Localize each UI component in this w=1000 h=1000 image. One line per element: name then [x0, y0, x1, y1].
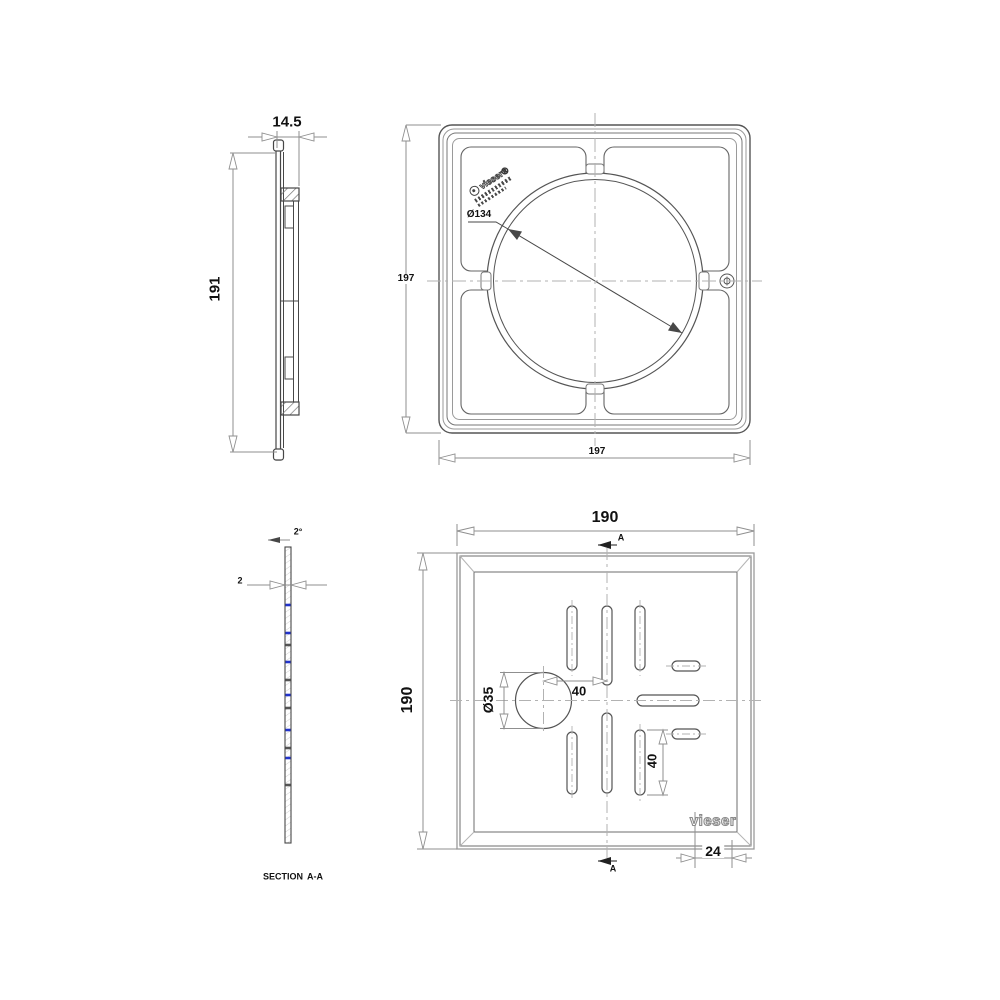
- dim-label-draft-angle: 2°: [294, 528, 303, 537]
- dim-label-frame-height: 197: [395, 274, 418, 284]
- side-plate: [276, 143, 281, 460]
- side-upper-clip: [285, 206, 294, 228]
- section-arrow-label-bottom: A: [610, 865, 617, 874]
- dim-label-side-width: 14.5: [272, 115, 301, 130]
- side-upper-flange: [281, 188, 299, 201]
- dim-label-hole-diameter: Ø35: [481, 687, 495, 713]
- side-lower-clip: [285, 357, 294, 379]
- section-draft-angle-mark: [268, 537, 290, 543]
- dim-label-frame-width: 197: [586, 447, 609, 457]
- dim-label-grate-height: 190: [400, 687, 416, 714]
- section-ticks: [286, 605, 291, 785]
- side-top-lip: [274, 140, 284, 151]
- drawing-linework: [0, 0, 1000, 1000]
- technical-drawing-canvas: 14.5 191 197 197 Ø134 vieser® 2° 2 SECTI…: [0, 0, 1000, 1000]
- section-caption: SECTION: [263, 873, 303, 882]
- dim-label-cover-diameter: Ø134: [467, 210, 491, 220]
- section-view-group: [247, 537, 327, 843]
- side-lower-flange: [281, 402, 299, 415]
- dim-label-thickness: 2: [237, 577, 242, 586]
- section-arrow-label-top: A: [618, 534, 625, 543]
- side-view-group: [274, 140, 300, 460]
- vieser-logo: vieser: [690, 814, 736, 829]
- section-caption-name: A-A: [307, 873, 323, 882]
- dim-label-slot-length: 40: [646, 754, 659, 768]
- dim-label-corner-offset: 24: [702, 844, 724, 858]
- dim-label-grate-width: 190: [592, 510, 619, 526]
- side-bottom-lip: [274, 449, 284, 460]
- dim-label-side-height: 191: [208, 276, 223, 301]
- frame-plan-group: [427, 113, 762, 446]
- dim-label-hole-offset: 40: [572, 685, 586, 698]
